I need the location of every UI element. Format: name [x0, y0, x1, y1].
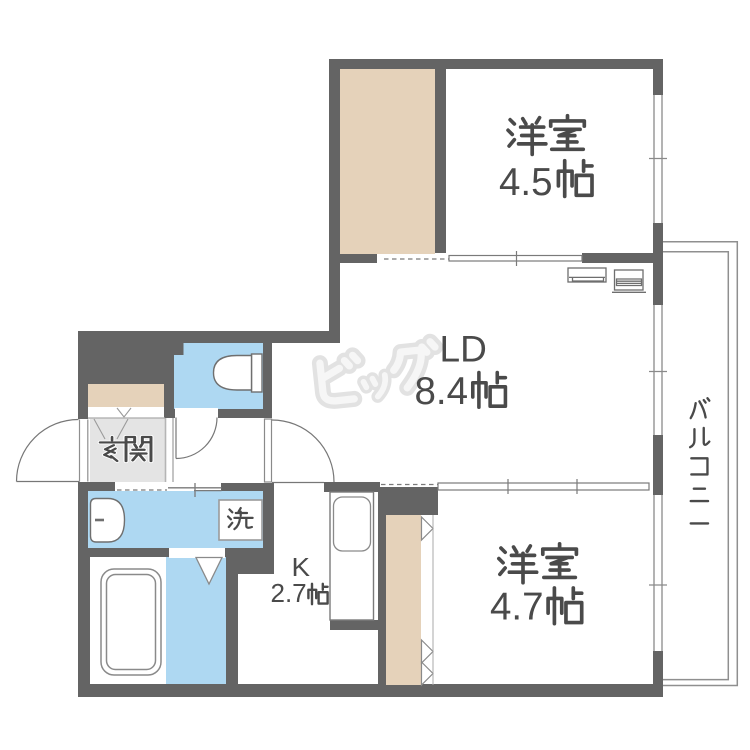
- svg-text:LD: LD: [440, 329, 487, 370]
- svg-text:8.4: 8.4: [415, 370, 469, 413]
- svg-text:4.7: 4.7: [490, 586, 544, 629]
- svg-text:4.5: 4.5: [499, 161, 553, 204]
- svg-text:2.7: 2.7: [271, 578, 307, 608]
